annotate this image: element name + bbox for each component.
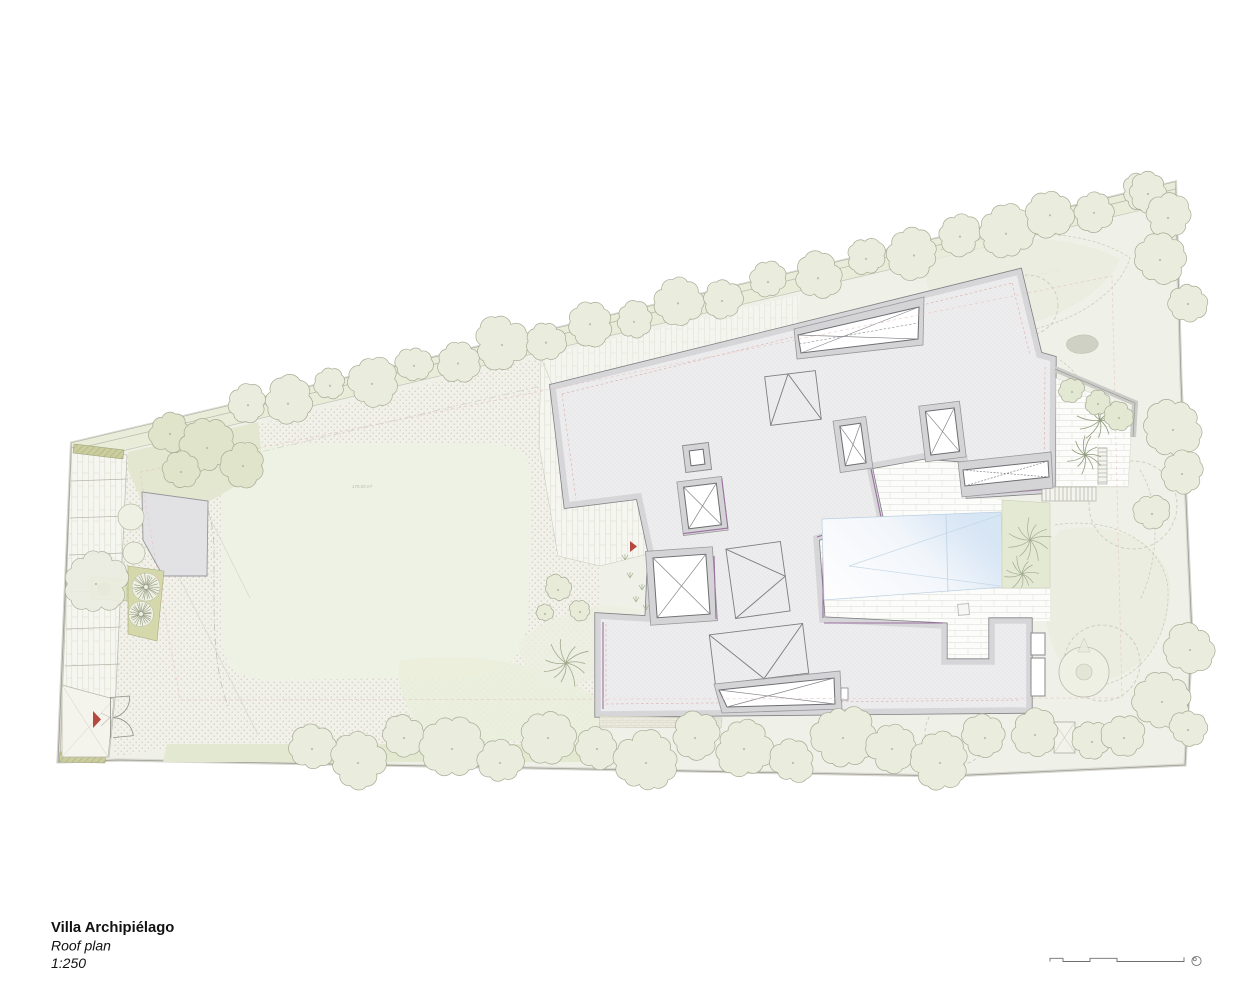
svg-text:1:250: 1:250 — [51, 955, 86, 971]
svg-text:Roof plan: Roof plan — [51, 938, 111, 954]
svg-text:Villa Archipiélago: Villa Archipiélago — [51, 920, 174, 936]
svg-text:170.00 m²: 170.00 m² — [352, 484, 373, 489]
